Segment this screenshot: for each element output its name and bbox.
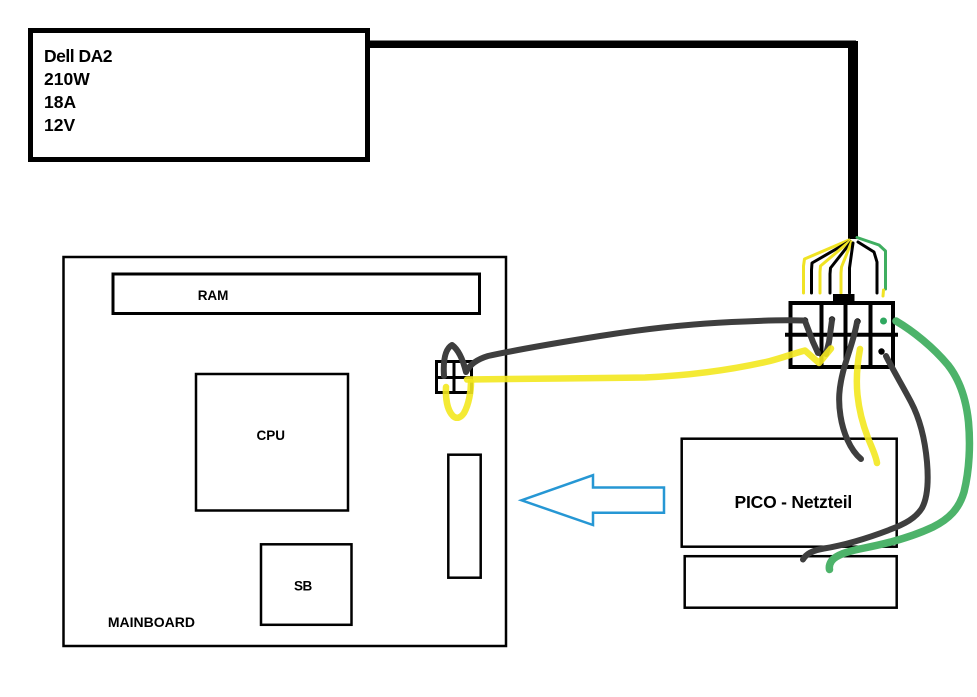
svg-text:PICO - Netzteil: PICO - Netzteil [735,492,853,512]
svg-text:Dell DA2: Dell DA2 [44,46,113,66]
svg-text:18A: 18A [44,92,76,112]
svg-text:SB: SB [294,579,313,594]
svg-text:12V: 12V [44,115,75,135]
svg-text:MAINBOARD: MAINBOARD [108,614,195,630]
svg-text:CPU: CPU [257,428,286,443]
svg-text:RAM: RAM [198,288,229,303]
svg-text:210W: 210W [44,69,90,89]
